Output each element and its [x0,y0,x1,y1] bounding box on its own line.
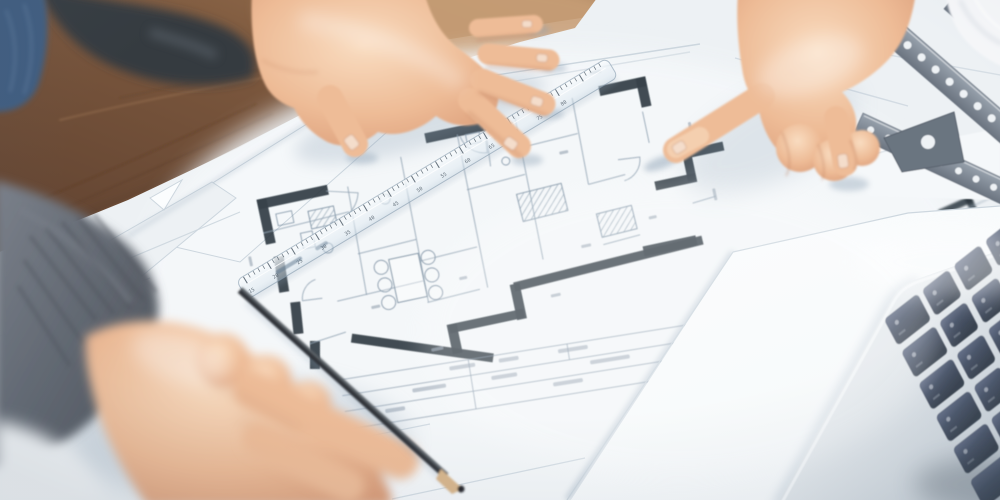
photo-canvas: Close-up photo of architects' hands over… [0,0,1000,500]
vignette [0,0,1000,500]
photo-scene: Close-up photo of architects' hands over… [0,0,1000,500]
